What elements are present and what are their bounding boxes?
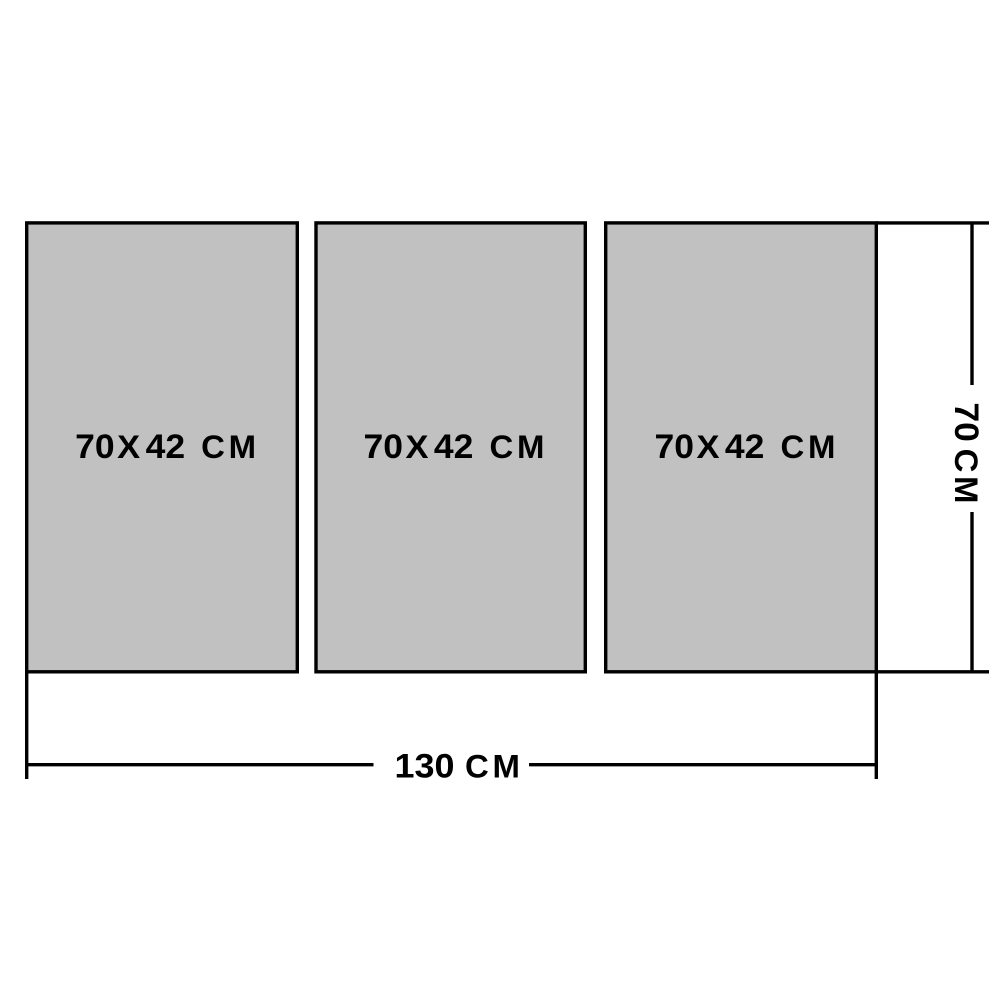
svg-text:70Х42СМ: 70Х42СМ — [364, 428, 549, 466]
svg-text:70Х42СМ: 70Х42СМ — [75, 428, 260, 466]
svg-text:70Х42СМ: 70Х42СМ — [655, 428, 840, 466]
svg-text:70СМ: 70СМ — [947, 402, 985, 507]
